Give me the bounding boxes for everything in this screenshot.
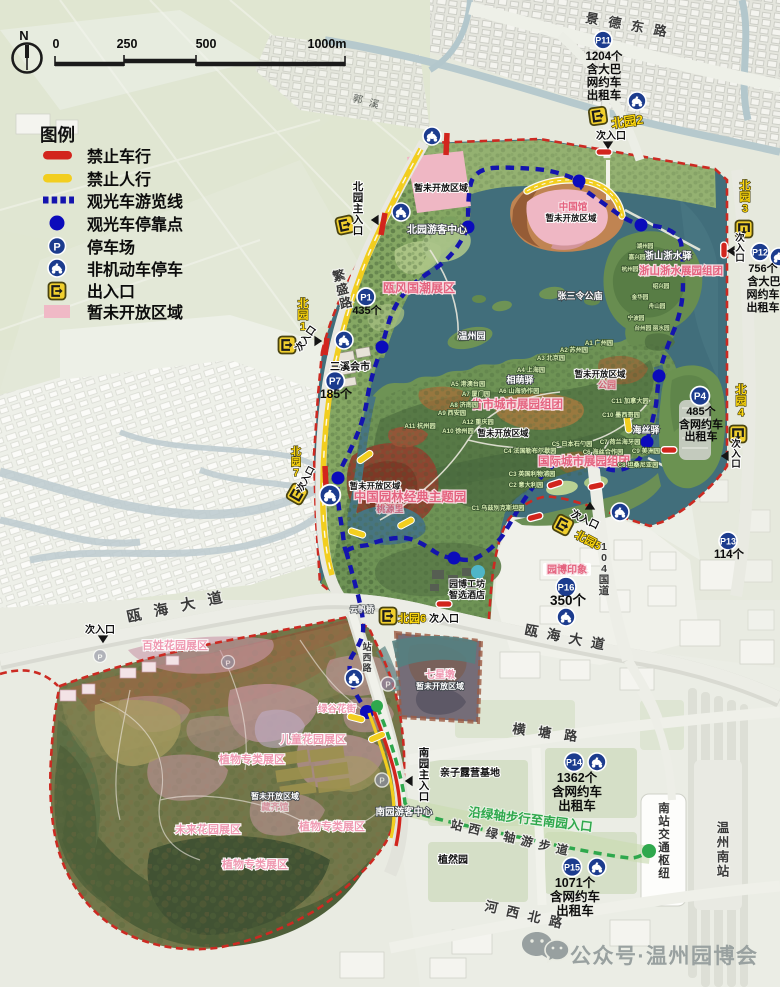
svg-text:瓯风国潮展区: 瓯风国潮展区 (383, 280, 455, 295)
svg-text:中国园林经典主题园: 中国园林经典主题园 (354, 489, 467, 504)
svg-text:485个: 485个 (686, 404, 716, 418)
svg-text:P: P (225, 659, 230, 668)
svg-text:公众号·温州园博会: 公众号·温州园博会 (570, 944, 759, 968)
svg-text:北园主入口: 北园主入口 (353, 180, 364, 237)
svg-text:1071个: 1071个 (555, 875, 596, 890)
svg-text:500: 500 (196, 37, 217, 51)
svg-text:A7 厦门园: A7 厦门园 (462, 390, 490, 398)
svg-text:中国馆: 中国馆 (559, 201, 588, 213)
svg-text:114个: 114个 (714, 547, 745, 561)
svg-text:出租车: 出租车 (587, 88, 622, 102)
svg-text:植然园: 植然园 (437, 853, 468, 866)
svg-text:图例: 图例 (40, 125, 75, 145)
svg-text:C11 加拿大园: C11 加拿大园 (611, 397, 648, 405)
svg-text:1204个: 1204个 (585, 49, 623, 63)
svg-text:园博工坊: 园博工坊 (449, 578, 485, 589)
svg-text:温州园: 温州园 (458, 330, 485, 341)
svg-text:三溪会市: 三溪会市 (330, 360, 370, 373)
svg-text:网约车: 网约车 (587, 75, 622, 89)
svg-text:A6 山海协作园: A6 山海协作园 (499, 387, 540, 395)
svg-text:756个: 756个 (748, 261, 778, 275)
svg-text:停车场: 停车场 (87, 238, 135, 257)
svg-text:C8 坦桑尼亚园: C8 坦桑尼亚园 (618, 461, 659, 469)
svg-text:嘉兴园: 嘉兴园 (628, 253, 646, 261)
svg-text:暂未开放区域: 暂未开放区域 (545, 213, 597, 223)
svg-text:P15: P15 (564, 863, 580, 873)
svg-text:暂未开放区域: 暂未开放区域 (251, 791, 299, 801)
svg-text:A9 西安园: A9 西安园 (438, 409, 466, 417)
svg-text:次入口: 次入口 (734, 232, 745, 264)
svg-text:植物专类展区: 植物专类展区 (221, 857, 288, 871)
svg-text:暂未开放区域: 暂未开放区域 (416, 681, 464, 691)
svg-text:P7: P7 (329, 377, 342, 388)
svg-text:250: 250 (117, 37, 138, 51)
svg-text:A12 重庆园: A12 重庆园 (462, 418, 494, 426)
svg-text:北园6: 北园6 (398, 611, 426, 625)
svg-text:P: P (379, 777, 385, 786)
svg-text:1362个: 1362个 (557, 770, 598, 785)
svg-text:C5 日本石勺园: C5 日本石勺园 (552, 440, 593, 448)
svg-text:出入口: 出入口 (87, 282, 135, 301)
svg-text:观光车游览线: 观光车游览线 (87, 192, 183, 211)
svg-text:P4: P4 (694, 392, 707, 403)
svg-text:植物专类展区: 植物专类展区 (298, 819, 365, 833)
svg-text:杭州园: 杭州园 (622, 265, 639, 273)
svg-text:次入口: 次入口 (85, 623, 115, 636)
svg-text:张三令公庙: 张三令公庙 (557, 290, 602, 301)
svg-text:出租车: 出租车 (747, 300, 780, 314)
svg-text:出租车: 出租车 (685, 429, 718, 443)
svg-text:暂未开放区域: 暂未开放区域 (87, 303, 183, 322)
svg-text:A10 徐州园: A10 徐州园 (442, 427, 474, 435)
svg-text:绿谷花街: 绿谷花街 (318, 703, 357, 715)
svg-text:次入口: 次入口 (596, 129, 626, 142)
svg-text:出租车: 出租车 (556, 903, 594, 918)
svg-text:435个: 435个 (352, 303, 382, 317)
svg-text:P: P (53, 242, 60, 254)
svg-text:禁止人行: 禁止人行 (87, 170, 151, 189)
svg-text:1000m: 1000m (308, 37, 347, 51)
svg-text:非机动车停车: 非机动车停车 (87, 260, 183, 279)
svg-text:南站交通枢纽: 南站交通枢纽 (658, 801, 670, 880)
svg-text:185个: 185个 (320, 386, 353, 401)
svg-text:C6 海丝合作园: C6 海丝合作园 (583, 448, 624, 456)
svg-text:350个: 350个 (550, 593, 587, 608)
svg-text:观光车停靠点: 观光车停靠点 (87, 215, 183, 234)
svg-text:藏齐馆: 藏齐馆 (261, 801, 288, 812)
svg-text:温州南站: 温州南站 (716, 821, 730, 879)
svg-text:未来花园展区: 未来花园展区 (174, 822, 241, 836)
svg-text:禁止车行: 禁止车行 (87, 147, 151, 166)
svg-text:含网约车: 含网约车 (678, 417, 723, 431)
svg-text:儿童花园展区: 儿童花园展区 (279, 732, 346, 746)
svg-text:C10 墨西哥园: C10 墨西哥园 (602, 411, 640, 419)
svg-text:智选酒店: 智选酒店 (449, 589, 485, 600)
svg-text:暂未开放区域: 暂未开放区域 (477, 428, 529, 438)
svg-text:百姓花园展区: 百姓花园展区 (142, 638, 208, 652)
svg-text:次入口: 次入口 (730, 438, 741, 470)
svg-text:A1 广州园: A1 广州园 (585, 339, 613, 347)
svg-text:C7 荷兰海牙园: C7 荷兰海牙园 (600, 438, 641, 446)
svg-text:P: P (97, 653, 102, 662)
svg-text:暂未开放区域: 暂未开放区域 (574, 369, 626, 379)
svg-text:C4 法国勒布尔歇园: C4 法国勒布尔歇园 (504, 447, 557, 455)
svg-text:海丝驿: 海丝驿 (632, 424, 660, 435)
svg-text:宁波园: 宁波园 (628, 314, 645, 322)
svg-text:N: N (19, 28, 28, 43)
svg-text:湖州园: 湖州园 (637, 242, 654, 250)
svg-text:亲子露营基地: 亲子露营基地 (440, 766, 500, 779)
svg-text:金华园: 金华园 (631, 293, 649, 301)
svg-text:含网约车: 含网约车 (551, 784, 603, 799)
svg-text:台州园 丽水园: 台州园 丽水园 (634, 324, 670, 332)
svg-text:P12: P12 (752, 248, 768, 258)
svg-text:P11: P11 (595, 36, 611, 46)
svg-text:含大巴: 含大巴 (586, 62, 622, 76)
svg-text:省市城市展园组团: 省市城市展园组团 (470, 397, 563, 411)
svg-text:0: 0 (53, 37, 60, 51)
svg-text:A11 杭州园: A11 杭州园 (404, 422, 435, 430)
svg-text:南园主入口: 南园主入口 (419, 746, 430, 803)
svg-text:出租车: 出租车 (558, 798, 596, 813)
svg-text:含大巴: 含大巴 (747, 274, 780, 288)
svg-text:云帆桥: 云帆桥 (350, 604, 375, 614)
svg-text:国际城市展园组团: 国际城市展园组团 (538, 454, 630, 468)
svg-text:浙山浙水展园组团: 浙山浙水展园组团 (639, 264, 723, 277)
svg-text:C2 意大利园: C2 意大利园 (509, 481, 543, 489)
svg-text:P1: P1 (360, 293, 372, 304)
svg-text:次入口: 次入口 (429, 612, 459, 625)
svg-text:P14: P14 (566, 758, 582, 768)
svg-text:A3 北京园: A3 北京园 (537, 354, 565, 362)
svg-text:公园: 公园 (598, 380, 616, 390)
svg-text:A8 济南园: A8 济南园 (450, 401, 478, 409)
svg-text:P13: P13 (720, 537, 736, 547)
svg-text:绍兴园: 绍兴园 (653, 282, 670, 290)
svg-text:P16: P16 (558, 583, 575, 594)
svg-text:七星墩: 七星墩 (425, 668, 456, 681)
svg-text:C3 英国利物浦园: C3 英国利物浦园 (509, 470, 556, 478)
svg-text:相萌驿: 相萌驿 (506, 374, 534, 385)
svg-text:南园游客中心: 南园游客中心 (375, 806, 433, 818)
svg-text:A4 上海园: A4 上海园 (517, 366, 545, 374)
svg-text:网约车: 网约车 (747, 287, 780, 301)
svg-text:A2 苏州园: A2 苏州园 (560, 346, 588, 354)
svg-text:暂未开放区域: 暂未开放区域 (414, 182, 468, 193)
svg-text:站西路: 站西路 (362, 641, 372, 673)
svg-text:C9 美洲园: C9 美洲园 (632, 447, 660, 455)
svg-text:浙山浙水驿: 浙山浙水驿 (644, 250, 692, 262)
svg-text:含网约车: 含网约车 (549, 889, 601, 904)
svg-text:舟山园: 舟山园 (649, 302, 666, 310)
svg-text:A5 港澳台园: A5 港澳台园 (451, 380, 485, 388)
svg-text:C1 乌兹别克斯坦园: C1 乌兹别克斯坦园 (472, 504, 525, 512)
svg-text:园博印象: 园博印象 (547, 563, 587, 576)
svg-text:植物专类展区: 植物专类展区 (218, 752, 285, 766)
svg-text:P: P (385, 681, 391, 690)
svg-text:北园游客中心: 北园游客中心 (407, 223, 467, 236)
svg-text:桃源里: 桃源里 (376, 503, 403, 514)
